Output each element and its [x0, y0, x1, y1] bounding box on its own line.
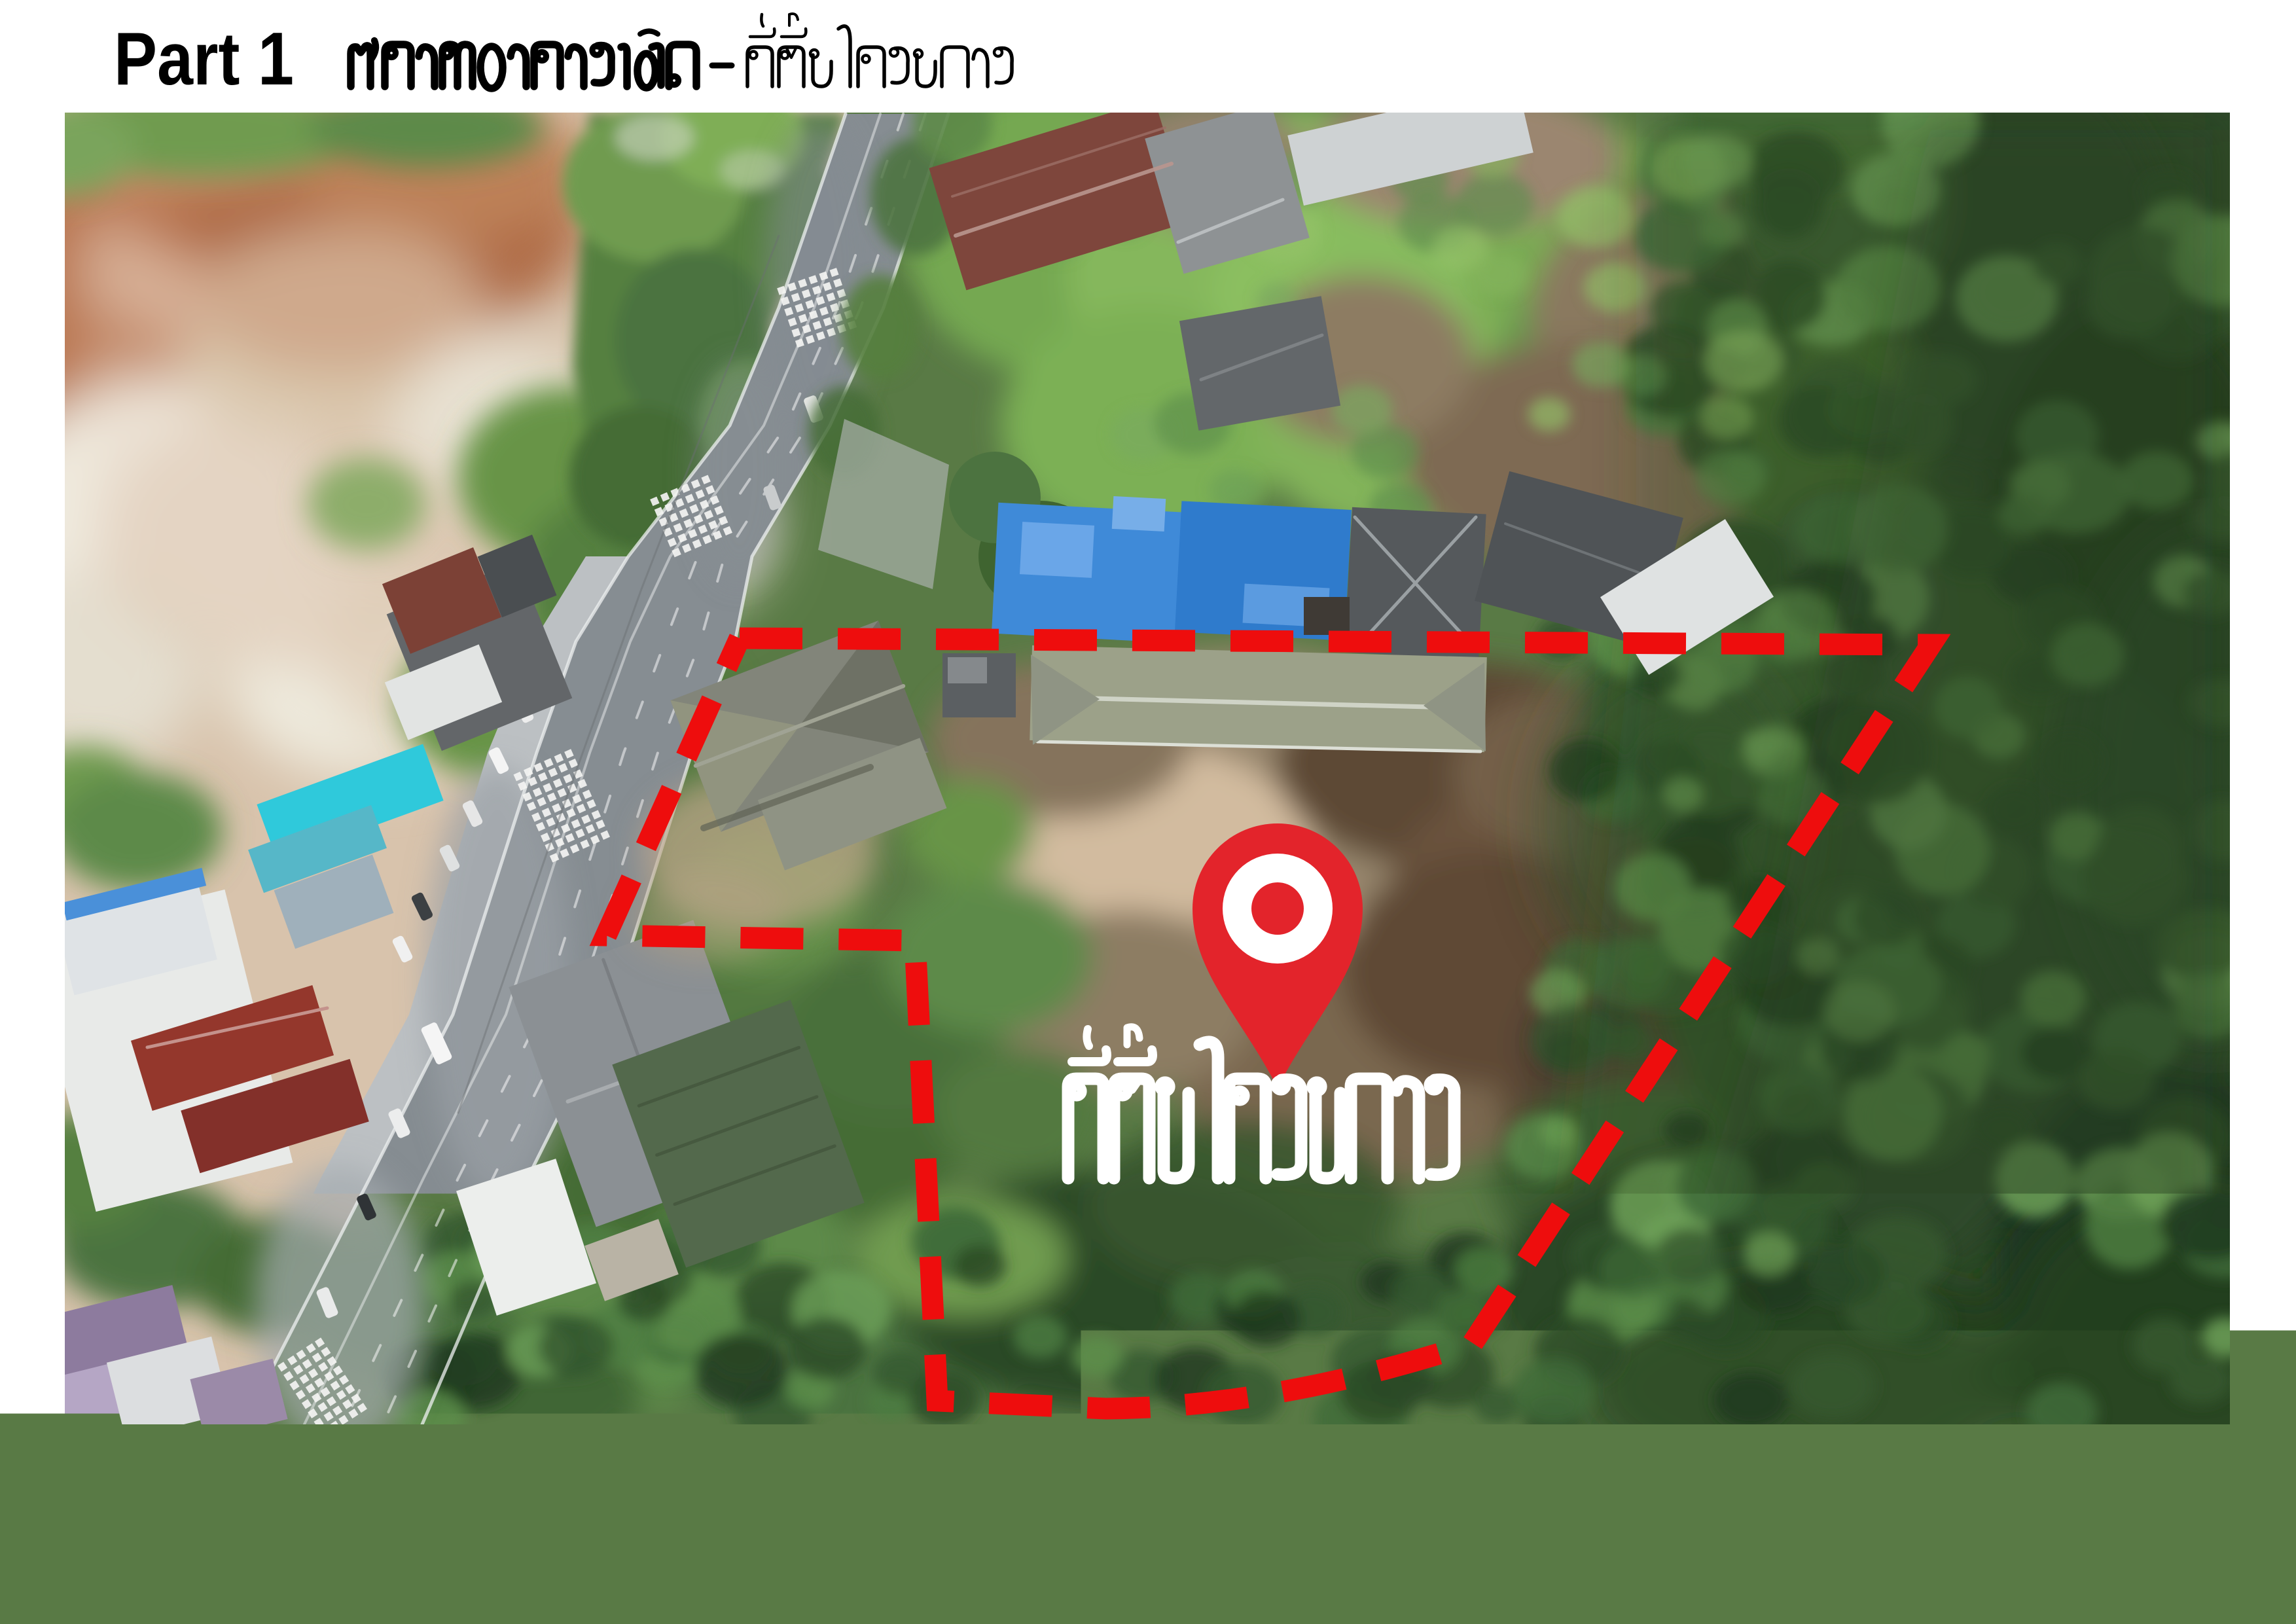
svg-text:g: g	[106, 1470, 127, 1516]
svg-text:8: 8	[332, 1482, 350, 1526]
svg-text:Ratsada , Phuket Town , Phuket: Ratsada , Phuket Town , Phuket	[465, 1467, 878, 1530]
svg-text:& Design: & Design	[2060, 1563, 2191, 1606]
svg-text:https://manbuildinginspections: https://manbuildinginspections.com	[182, 1562, 695, 1612]
svg-text::: :	[1635, 1551, 1653, 1610]
svg-text:124/127: 124/127	[184, 1482, 257, 1526]
svg-text:83000: 83000	[899, 1482, 978, 1526]
svg-text:Part 1: Part 1	[114, 18, 294, 101]
svg-text:Soi: Soi	[271, 1467, 326, 1530]
svg-text:Moo: Moo	[363, 1467, 427, 1530]
svg-text:https://www.facebook.com/MANBu: https://www.facebook.com/MANBuildinginsp…	[1106, 1485, 1812, 1534]
svg-text:info@manbuildinginspections.co: info@manbuildinginspections.com	[843, 1562, 1270, 1612]
svg-text:Building: Building	[2060, 1485, 2175, 1527]
svg-text:0925615692: 0925615692	[1664, 1557, 1859, 1611]
svg-text:www: www	[105, 1574, 155, 1596]
svg-text:ID: ID	[1570, 1551, 1617, 1610]
svg-text:5: 5	[437, 1482, 452, 1526]
svg-text:Inspection: Inspection	[2060, 1523, 2198, 1565]
svg-text:LINE: LINE	[1499, 1566, 1541, 1587]
